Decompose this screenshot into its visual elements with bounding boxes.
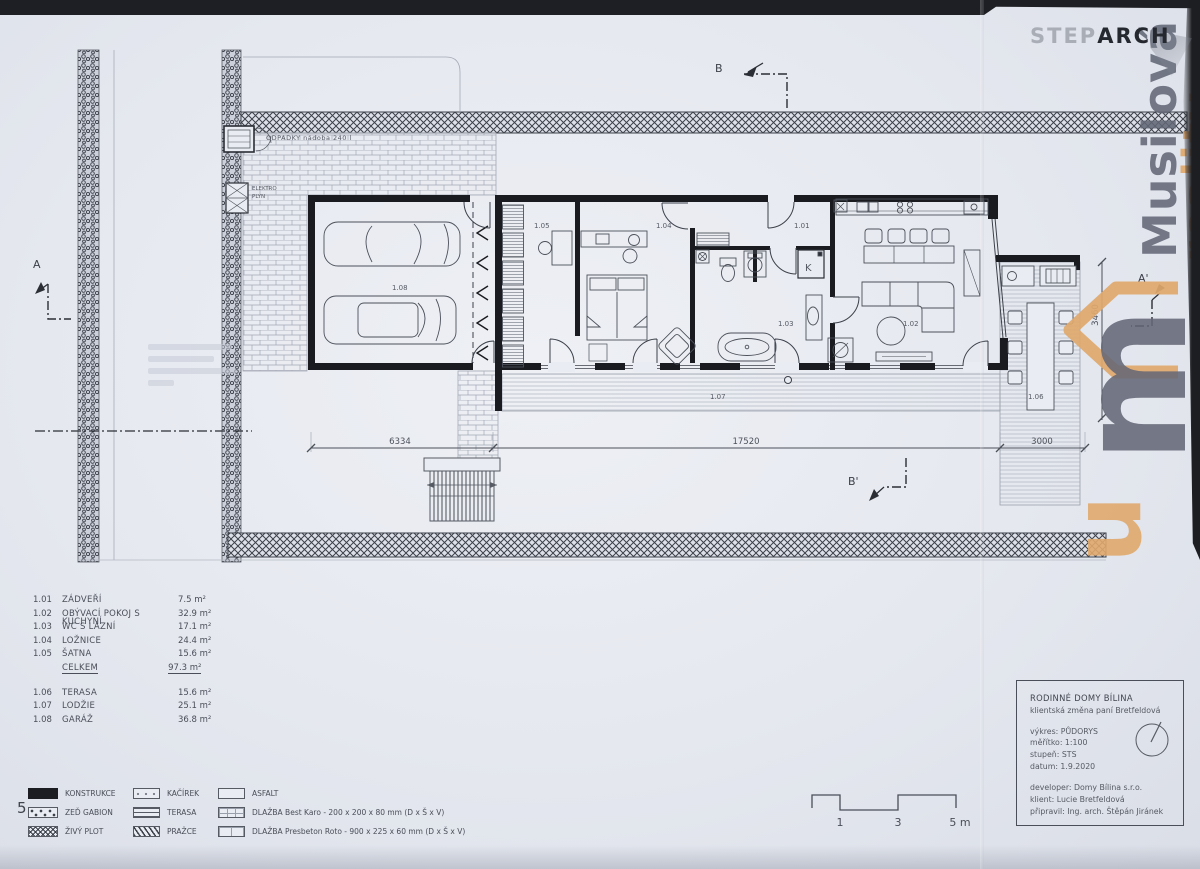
room-label-lodzie: 1.07 [710, 393, 726, 401]
material-legend-col2: KAČÍREK TERASA PRAŽCE [133, 784, 199, 841]
north-arrow-icon [1130, 717, 1174, 761]
room-area: 36.8 m² [178, 716, 211, 725]
legend-row: 1.07LODŽIE25.1 m² [33, 702, 211, 716]
client-line: klient: Lucie Bretfeldová [1030, 794, 1183, 806]
material-label: TERASA [167, 808, 196, 817]
title-block: RODINNÉ DOMY BÍLINA klientská změna paní… [1016, 680, 1184, 826]
material-label: DLAŽBA Best Karo - 200 x 200 x 80 mm (D … [252, 808, 444, 817]
dim-3000: 3000 [1031, 437, 1053, 447]
developer-line: developer: Domy Bílina s.r.o. [1030, 782, 1183, 794]
material-item: KONSTRUKCE [28, 784, 116, 803]
material-item: TERASA [133, 803, 199, 822]
legend-row: 1.06TERASA15.6 m² [33, 689, 211, 703]
scale-tick-3: 3 [895, 816, 902, 829]
legend-row: 1.04LOŽNICE24.4 m² [33, 637, 211, 651]
room-area: 7.5 m² [178, 596, 206, 605]
legend-row: 1.05ŠATNA15.6 m² [33, 650, 211, 664]
plyn-label: PLYN [252, 194, 265, 200]
swatch-kacirek [133, 788, 160, 799]
room-name: ZÁDVEŘÍ [62, 596, 178, 605]
elektro-plyn-box [226, 183, 248, 213]
room-label-obyvaci: 1.02 [903, 320, 919, 328]
material-label: KONSTRUKCE [65, 789, 116, 798]
scanned-floor-plan-page: 6334 17520 3000 3460 B B' A A' 1.08 1.05… [0, 0, 1200, 869]
room-name: GARÁŽ [62, 716, 178, 725]
room-label-garage: 1.08 [392, 284, 408, 292]
swatch-konstrukce [28, 788, 58, 799]
legend-row: 1.02OBÝVACÍ POKOJ S KUCHYNÍ32.9 m² [33, 610, 211, 624]
material-label: ASFALT [252, 789, 278, 798]
room-code: 1.01 [33, 596, 62, 605]
steparch-logo: STEPARCH [1030, 24, 1171, 48]
swatch-dlazba-roto [218, 826, 245, 837]
project-title: RODINNÉ DOMY BÍLINA [1030, 692, 1183, 705]
elektro-label: ELEKTRO [252, 186, 277, 192]
room-area: 17.1 m² [178, 623, 211, 632]
room-name: TERASA [62, 689, 178, 698]
photo-edge-bottom [0, 845, 1200, 869]
scale-tick-5m: 5 m [949, 816, 970, 829]
material-label: KAČÍREK [167, 789, 199, 798]
legend-row: 1.03WC S LÁZNÍ17.1 m² [33, 623, 211, 637]
room-label-terasa: 1.06 [1028, 393, 1044, 401]
logo-arch: ARCH [1097, 24, 1170, 48]
legend-row: 1.08GARÁŽ36.8 m² [33, 716, 211, 730]
bedroom-furniture [581, 231, 697, 366]
material-label: ZEĎ GABION [65, 808, 113, 817]
room-code: 1.07 [33, 702, 62, 711]
material-legend-col1: KONSTRUKCE ZEĎ GABION ŽIVÝ PLOT [28, 784, 116, 841]
page-number: 5 [17, 799, 27, 817]
prepared-line: připravil: Ing. arch. Štěpán Jiránek [1030, 806, 1183, 818]
section-label-a: A [33, 258, 41, 271]
section-label-b: B [715, 62, 723, 75]
room-name: ŠATNA [62, 650, 178, 659]
material-item: ŽIVÝ PLOT [28, 822, 116, 841]
drawing-date: datum: 1.9.2020 [1030, 761, 1183, 773]
room-label-zadveri: 1.01 [794, 222, 810, 230]
scale-tick-1: 1 [837, 816, 844, 829]
legend-total-row: CELKEM97.3 m² [33, 664, 211, 678]
room-legend: 1.01ZÁDVEŘÍ7.5 m² 1.02OBÝVACÍ POKOJ S KU… [33, 596, 211, 729]
room-area: 24.4 m² [178, 637, 211, 646]
room-label-satna: 1.05 [534, 222, 550, 230]
material-item: ZEĎ GABION [28, 803, 116, 822]
dimension-lines [307, 258, 1106, 452]
material-item: DLAŽBA Best Karo - 200 x 200 x 80 mm (D … [218, 803, 465, 822]
section-label-b2: B' [848, 475, 859, 488]
loggia-terrace-deck [495, 262, 1080, 505]
swatch-asfalt [218, 788, 245, 799]
material-item: KAČÍREK [133, 784, 199, 803]
room-code: 1.04 [33, 637, 62, 646]
swatch-hedge [28, 826, 58, 837]
room-name: WC S LÁZNÍ [62, 623, 178, 632]
swatch-dlazba-karo [218, 807, 245, 818]
paving-dlazba [243, 133, 498, 458]
material-item: ASFALT [218, 784, 465, 803]
room-name: LODŽIE [62, 702, 178, 711]
boiler-label: K [805, 263, 812, 274]
room-area: 25.1 m² [178, 702, 211, 711]
room-name: CELKEM [62, 664, 98, 675]
room-code: 1.05 [33, 650, 62, 659]
dim-6334: 6334 [389, 437, 411, 447]
dim-17520: 17520 [732, 437, 759, 447]
room-code: 1.08 [33, 716, 62, 725]
material-legend-col3: ASFALT DLAŽBA Best Karo - 200 x 200 x 80… [218, 784, 465, 841]
material-item: PRAŽCE [133, 822, 199, 841]
room-area: 32.9 m² [178, 610, 211, 619]
logo-step: STEP [1030, 24, 1097, 48]
odpadky-label: ODPADKY nádoba 240 l [266, 134, 352, 142]
dim-3460: 3460 [1091, 304, 1101, 326]
room-label-loznice: 1.04 [656, 222, 672, 230]
paper-crease [980, 0, 984, 869]
room-code: 1.02 [33, 610, 62, 619]
material-label: PRAŽCE [167, 827, 197, 836]
room-name: LOŽNICE [62, 637, 178, 646]
material-label: DLAŽBA Presbeton Roto - 900 x 225 x 60 m… [252, 827, 465, 836]
room-code: 1.03 [33, 623, 62, 632]
swatch-gabion [28, 807, 58, 818]
garage-cars [324, 222, 460, 344]
prazce-steps [424, 458, 500, 521]
material-item: DLAŽBA Presbeton Roto - 900 x 225 x 60 m… [218, 822, 465, 841]
legend-row: 1.01ZÁDVEŘÍ7.5 m² [33, 596, 211, 610]
project-subtitle: klientská změna paní Bretfeldová [1030, 705, 1183, 717]
swatch-terasa [133, 807, 160, 818]
room-label-wc: 1.03 [778, 320, 794, 328]
swatch-prazce [133, 826, 160, 837]
living-kitchen-furniture [828, 199, 988, 362]
section-label-a2: A' [1138, 272, 1149, 285]
room-area: 15.6 m² [178, 650, 211, 659]
room-area: 97.3 m² [168, 664, 201, 675]
material-label: ŽIVÝ PLOT [65, 827, 103, 836]
room-area: 15.6 m² [178, 689, 211, 698]
scale-bar: 1 3 5 m [808, 788, 978, 833]
room-code: 1.06 [33, 689, 62, 698]
